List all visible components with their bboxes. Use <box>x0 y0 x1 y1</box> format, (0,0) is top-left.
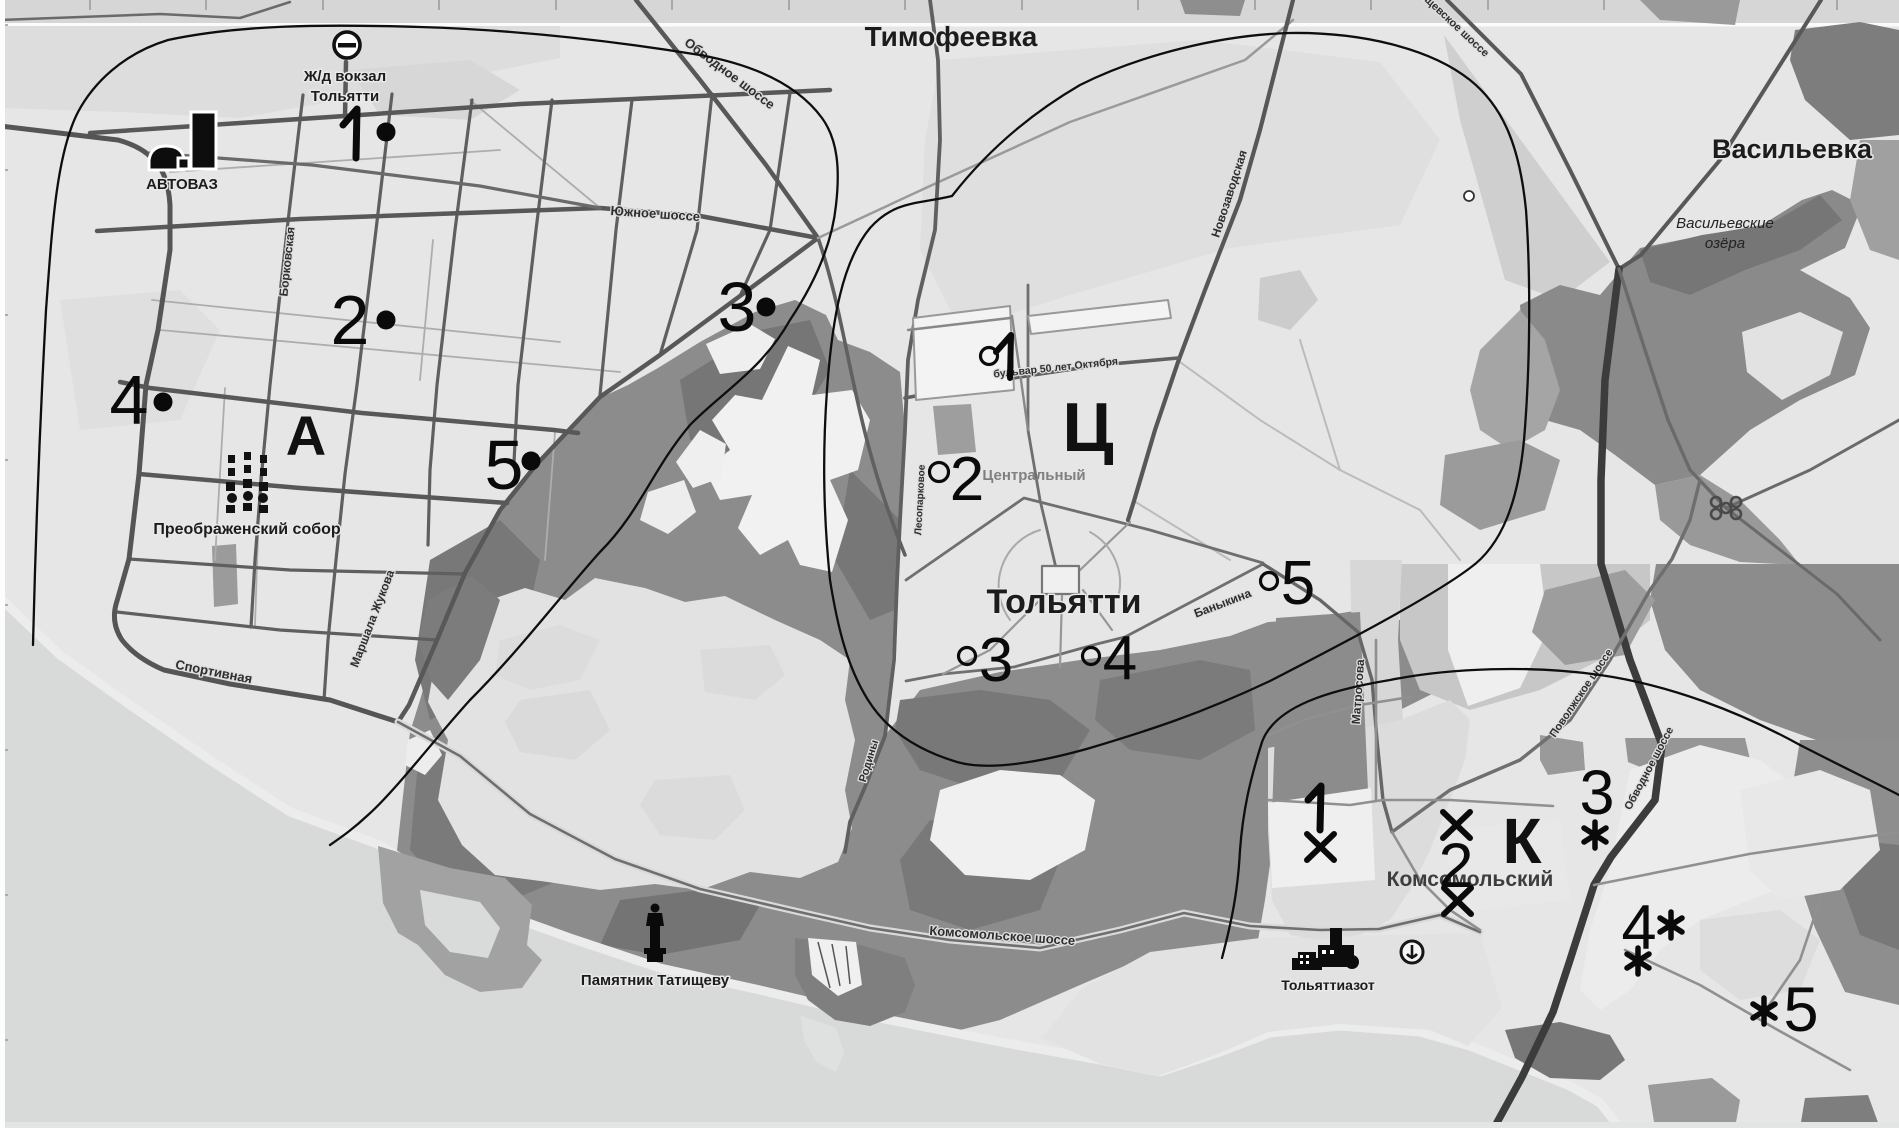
svg-text:Центральный: Центральный <box>982 467 1085 484</box>
svg-text:Васильевка: Васильевка <box>1712 134 1873 164</box>
svg-text:4: 4 <box>110 361 149 439</box>
svg-text:3: 3 <box>718 268 757 346</box>
svg-text:Васильевские: Васильевские <box>1676 215 1774 232</box>
svg-text:Тольяттиазот: Тольяттиазот <box>1281 977 1375 993</box>
svg-text:5: 5 <box>485 426 524 504</box>
svg-text:озёра: озёра <box>1705 235 1745 252</box>
svg-text:А: А <box>286 404 326 467</box>
svg-text:2: 2 <box>950 445 984 514</box>
svg-text:Тольятти: Тольятти <box>986 583 1141 621</box>
svg-text:Тольятти: Тольятти <box>311 88 379 105</box>
svg-text:2: 2 <box>331 281 370 359</box>
svg-text:Ж/д вокзал: Ж/д вокзал <box>303 68 386 85</box>
svg-text:3: 3 <box>1579 758 1614 828</box>
svg-text:Тимофеевка: Тимофеевка <box>865 21 1038 52</box>
svg-text:5: 5 <box>1783 975 1818 1045</box>
svg-text:Ц: Ц <box>1062 388 1113 466</box>
svg-text:Преображенский собор: Преображенский собор <box>153 521 341 538</box>
svg-text:АВТОВАЗ: АВТОВАЗ <box>146 176 218 193</box>
svg-text:5: 5 <box>1281 549 1315 618</box>
svg-text:4: 4 <box>1103 624 1137 693</box>
svg-text:Памятник Татищеву: Памятник Татищеву <box>581 972 730 989</box>
svg-text:3: 3 <box>979 626 1013 695</box>
svg-text:К: К <box>1502 805 1542 877</box>
